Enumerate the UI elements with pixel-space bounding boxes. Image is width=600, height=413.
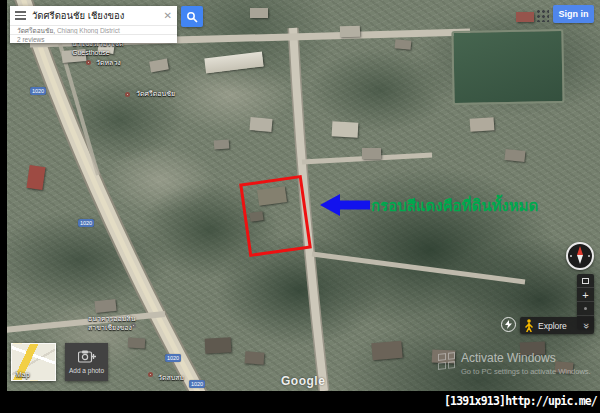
search-query[interactable]: วัดศรีดอนชัย เชียงของ (32, 8, 160, 23)
add-photo-button[interactable]: Add a photo (65, 343, 108, 381)
building (249, 117, 272, 132)
map-label-line: สาขาเชียงของ (88, 324, 132, 331)
close-icon[interactable]: ✕ (164, 11, 172, 21)
explore-label: Explore (538, 321, 578, 331)
building (362, 148, 381, 159)
suggestion-secondary: Chiang Khong District (55, 27, 120, 34)
search-input[interactable]: วัดศรีดอนชัย เชียงของ ✕ (10, 6, 177, 25)
suggestion-primary: วัดศรีดอนชัย, (17, 27, 55, 34)
building (128, 338, 146, 349)
slider-dot-icon (584, 307, 587, 310)
map-mode-label: Map (16, 371, 30, 378)
apps-grid-icon[interactable] (536, 9, 549, 22)
map-label-poi: วัดหลวง (96, 58, 121, 67)
zoom-slider-dot[interactable] (577, 302, 594, 316)
building (205, 337, 232, 353)
route-shield: 1020 (189, 380, 205, 388)
compass-control[interactable] (566, 242, 594, 270)
google-logo: Google (281, 374, 325, 388)
map-label-bank: ธนาคารออมสิน สาขาเชียงของ (88, 314, 135, 332)
add-photo-label: Add a photo (69, 367, 104, 374)
sign-in-button[interactable]: Sign in (553, 5, 594, 23)
route-shield: 1020 (165, 354, 181, 362)
building (332, 121, 359, 137)
building (395, 39, 412, 49)
pegman-icon[interactable] (525, 319, 533, 332)
chevron-double-down-icon[interactable]: » (581, 323, 591, 329)
map-mode-toggle[interactable]: Map (11, 343, 56, 381)
explore-bar[interactable]: Explore » (520, 317, 594, 334)
activate-line1: Activate Windows (461, 351, 591, 365)
building (214, 139, 230, 149)
poi-marker[interactable] (125, 92, 130, 97)
pond (451, 29, 564, 105)
left-black-border (0, 0, 7, 391)
search-card: วัดศรีดอนชัย เชียงของ ✕ วัดศรีดอนชัย, Ch… (10, 6, 177, 43)
poi-marker[interactable] (86, 60, 91, 65)
compass-south-needle (577, 255, 583, 264)
tilt-icon (582, 278, 589, 284)
screenshot-stage: น้ำโขงริเวอร์ไซด์ Guesthouse วัดหลวง วัด… (0, 0, 600, 413)
compass-dot (570, 255, 572, 257)
building (371, 341, 402, 361)
zoom-in-button[interactable]: + (577, 288, 594, 302)
compass-north-needle (577, 246, 583, 255)
map-label-line: ธนาคารออมสิน (88, 315, 135, 322)
windows-activate-watermark: Activate Windows Go to PC settings to ac… (438, 351, 591, 376)
menu-icon[interactable] (15, 11, 26, 20)
building (516, 12, 534, 22)
activate-line2: Go to PC settings to activate Windows. (461, 367, 591, 376)
tilt-button[interactable] (577, 274, 594, 288)
building (94, 299, 116, 313)
building (504, 149, 525, 162)
reviews-link[interactable]: 2 reviews (10, 34, 177, 43)
annotation-note: กรอบสีแดงคือที่ดินทั้งหมด (371, 194, 597, 218)
camera-plus-icon (78, 350, 96, 363)
route-shield: 1020 (30, 87, 46, 95)
map-label-poi: วัดศรีดอนชัย (136, 89, 175, 98)
map-label-line: Guesthouse (72, 49, 110, 56)
map-label-poi: วัดสบสม (158, 373, 184, 382)
windows-logo-icon (438, 352, 455, 370)
building (250, 8, 268, 18)
building (470, 117, 495, 132)
poi-marker[interactable] (148, 372, 153, 377)
arrow-left-icon (320, 191, 372, 219)
building (340, 26, 360, 38)
search-button[interactable] (181, 6, 203, 27)
building (245, 351, 265, 364)
building (26, 165, 45, 190)
search-icon (186, 11, 198, 23)
search-suggestion[interactable]: วัดศรีดอนชัย, Chiang Khong District (10, 25, 177, 34)
land-plot-outline (239, 175, 312, 257)
bottom-black-bar: [1391x913]http://upic.me/ (0, 391, 600, 413)
bolt-icon (501, 317, 516, 332)
route-shield: 1020 (78, 219, 94, 227)
image-host-tag: [1391x913]http://upic.me/ (444, 394, 597, 408)
compass-dot (588, 255, 590, 257)
